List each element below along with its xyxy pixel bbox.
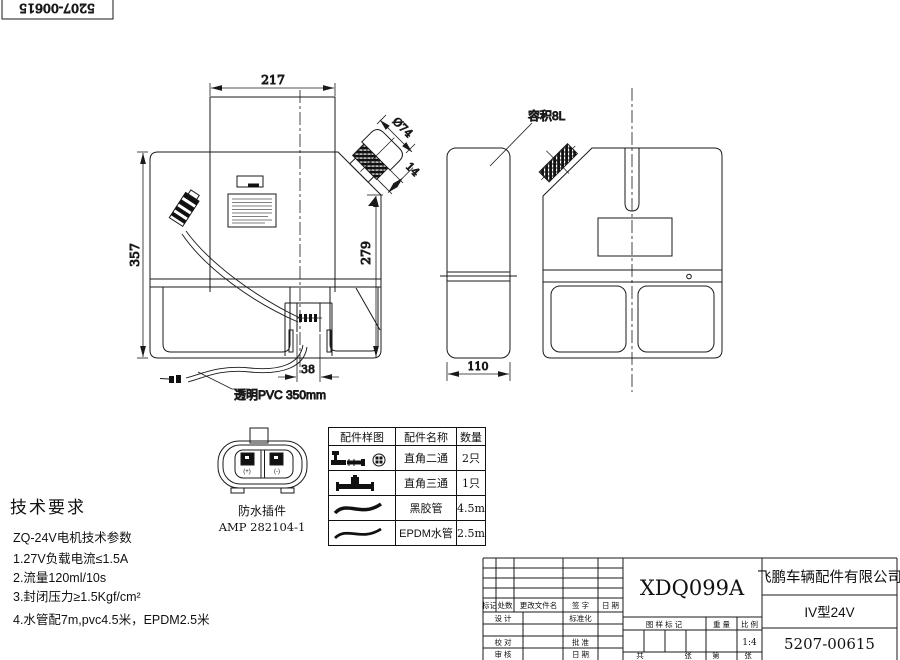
- connector-model: AMP 282104-1: [218, 520, 306, 534]
- plus-terminal-label: (+): [243, 469, 251, 475]
- label-total: 共: [636, 651, 644, 660]
- pump-pocket: [285, 303, 332, 356]
- tech-requirement-item: 4.水管配7m,pvc4.5米，EPDM2.5米: [13, 609, 210, 628]
- scale-value: 1:4: [742, 638, 757, 648]
- dimension-217: 217: [210, 72, 335, 96]
- tech-requirement-item: 1.27V负载电流≤1.5A: [13, 548, 128, 567]
- parts-table-header-row: 配件样图 配件名称 数量: [329, 428, 486, 446]
- svg-text:279: 279: [358, 241, 373, 265]
- part-name: 直角三通: [396, 471, 457, 496]
- label-review: 审 核: [494, 649, 512, 659]
- drawing-code: XDQ099A: [640, 576, 745, 600]
- svg-text:217: 217: [261, 72, 285, 87]
- label-qty: 处数: [498, 600, 513, 610]
- hose-curve-icon: [329, 521, 396, 546]
- tech-requirements-subtitle: ZQ-24V电机技术参数: [13, 527, 132, 546]
- hose-label: 透明PVC 350mm: [198, 372, 326, 402]
- svg-text:110: 110: [468, 360, 489, 373]
- svg-text:38: 38: [301, 363, 315, 376]
- label-changed-file: 更改文件名: [520, 600, 558, 610]
- part-qty: 2.5m: [457, 521, 486, 546]
- label-mark: 标记: [482, 600, 497, 610]
- parts-table: 配件样图 配件名称 数量: [328, 427, 486, 546]
- header-sample: 配件样图: [329, 428, 396, 446]
- header-name: 配件名称: [396, 428, 457, 446]
- table-row: 直角三通 1只: [329, 471, 486, 496]
- label-standardization: 标准化: [569, 613, 592, 623]
- svg-text:14: 14: [403, 160, 422, 179]
- dimension-357: 357: [127, 152, 148, 358]
- tech-requirements-title: 技术要求: [10, 493, 86, 518]
- label-sheet: 张: [744, 651, 752, 660]
- label-no: 第: [712, 650, 720, 660]
- front-view: [150, 90, 408, 383]
- tech-requirement-item: 2.流量120ml/10s: [13, 567, 106, 586]
- part-qty: 4.5m: [457, 496, 486, 521]
- label-date: 日 期: [602, 601, 619, 610]
- label-approve: 批 准: [572, 637, 590, 647]
- tech-requirement-item: 3.封闭压力≥1.5Kgf/cm²: [13, 586, 141, 605]
- dimension-110: 110: [447, 360, 510, 381]
- label-sign: 签 字: [572, 600, 589, 610]
- wire: [186, 231, 300, 318]
- label-weight: 重 量: [713, 620, 731, 629]
- minus-terminal-label: (-): [274, 469, 280, 475]
- drawing-canvas: 5207-00615: [0, 0, 900, 660]
- svg-text:容积8L: 容积8L: [528, 108, 566, 123]
- product-sticker: [228, 194, 276, 227]
- label-date2: 日 期: [572, 650, 589, 659]
- table-row: 直角二通 2只: [329, 446, 486, 471]
- header-qty: 数量: [457, 428, 486, 446]
- power-plug: [169, 188, 201, 226]
- model-name: IV型24V: [804, 605, 854, 620]
- table-row: 黑胶管 4.5m: [329, 496, 486, 521]
- label-sheets: 张: [684, 651, 692, 660]
- label-pattern-mark: 图 样 标 记: [646, 619, 683, 629]
- dimension-279: 279: [358, 195, 383, 357]
- label-proofread: 校 对: [494, 637, 512, 647]
- table-row: EPDM水管 2.5m: [329, 521, 486, 546]
- label-scale: 比 例: [741, 619, 758, 629]
- company-name: 飞鹏车辆配件有限公司: [757, 569, 900, 586]
- rear-view: [529, 88, 722, 392]
- engineering-drawing-sheet: 5207-00615: [0, 0, 900, 660]
- svg-text:透明PVC 350mm: 透明PVC 350mm: [234, 388, 326, 402]
- side-view: [440, 148, 517, 358]
- part-number: 5207-00615: [784, 635, 875, 653]
- part-qty: 1只: [457, 471, 486, 496]
- part-name: 直角二通: [396, 446, 457, 471]
- svg-text:Ø74: Ø74: [390, 115, 415, 140]
- part-name: 黑胶管: [396, 496, 457, 521]
- svg-text:357: 357: [127, 243, 142, 267]
- corner-part-number: 5207-00615: [19, 1, 95, 16]
- part-name: EPDM水管: [396, 521, 457, 546]
- part-qty: 2只: [457, 446, 486, 471]
- corner-reference-box: 5207-00615: [2, 0, 113, 19]
- tee-three-way-icon: [329, 471, 396, 496]
- elbow-two-way-icon: [329, 446, 396, 471]
- hose-curve-icon: [329, 496, 396, 521]
- connector-detail: (+) (-) 防水插件 AMP 282104-1: [218, 428, 307, 534]
- connector-name: 防水插件: [238, 503, 286, 518]
- title-block: 标记 处数 更改文件名 签 字 日 期 设 计 标准化 校 对 批 准 审 核 …: [482, 558, 900, 660]
- label-design: 设 计: [494, 613, 512, 623]
